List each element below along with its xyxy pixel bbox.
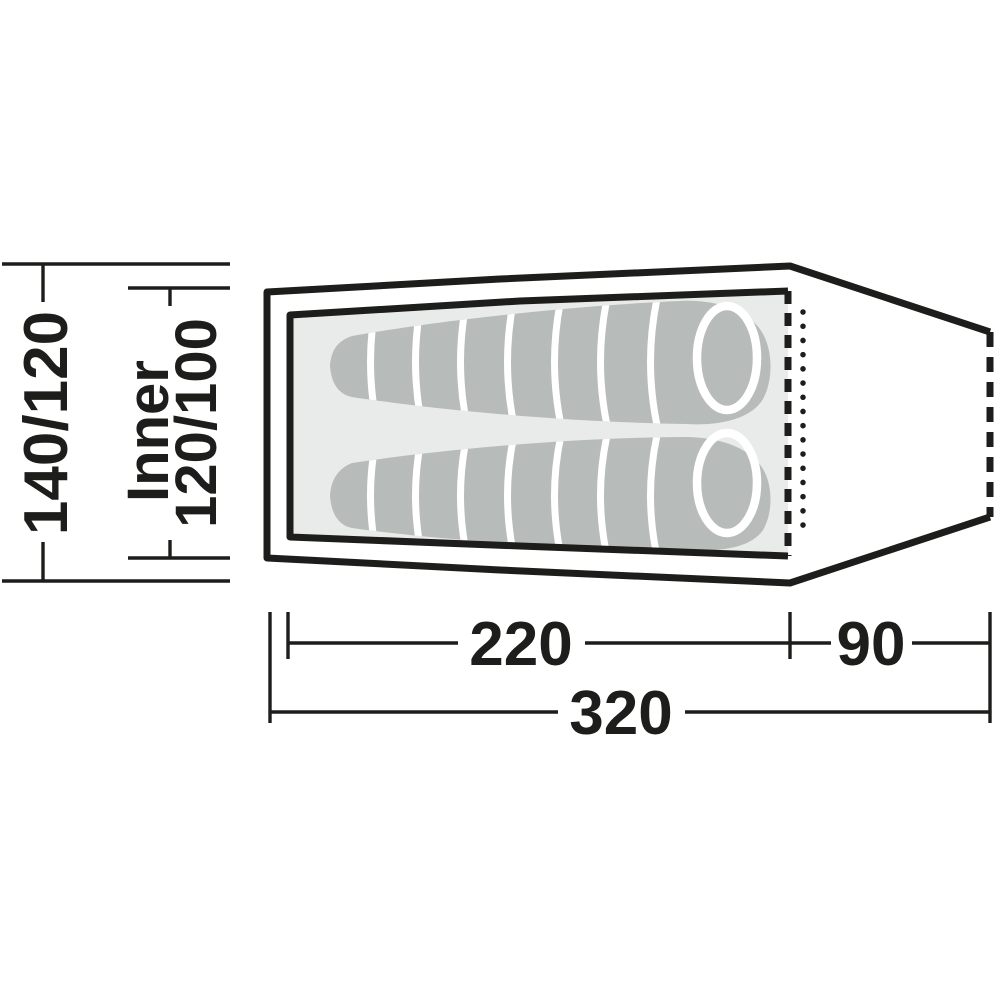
dim-total-length: 320 [270,679,990,748]
total-length-label: 320 [569,679,672,748]
tent-dimension-diagram: 140/120 Inner 120/100 220 90 [0,0,1000,1000]
dim-inner-length: 220 [288,610,790,679]
inner-width-label: Inner 120/100 [116,318,229,528]
tent-body [267,266,990,583]
porch-length-label: 90 [837,610,906,679]
outer-width-label: 140/120 [12,311,81,535]
inner-length-label: 220 [469,610,572,679]
tent-top-view-diagram: 140/120 Inner 120/100 220 90 [0,0,1000,1000]
dim-inner-width: Inner 120/100 [116,288,230,558]
dim-porch-length: 90 [790,610,990,679]
